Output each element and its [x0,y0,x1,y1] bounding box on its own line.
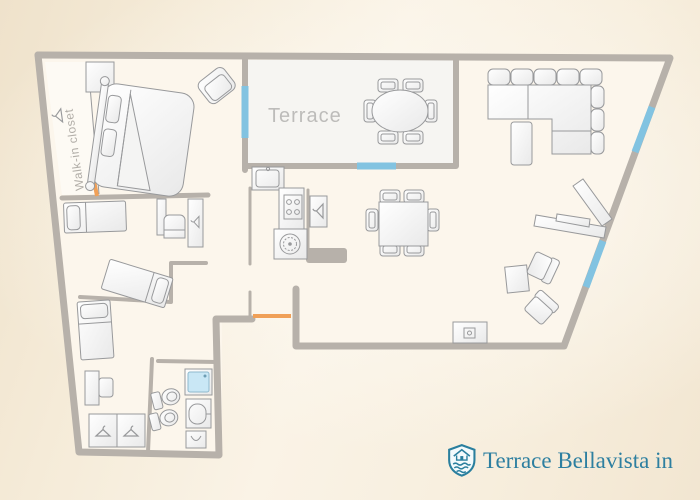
brand-name: Terrace Bellavista in [483,448,673,473]
pillow [67,206,81,230]
brand-shield-icon [449,445,474,475]
bedroom1-wall [62,195,208,198]
hall-wall-block [306,248,347,263]
washing-machine [274,229,307,259]
dining-chair [427,209,439,231]
brand-logo: Terrace Bellavista in [449,445,673,475]
hall-wardrobe [310,196,327,227]
oval-table [372,90,428,132]
terrace-label: Terrace [268,105,342,127]
desk-chair [99,378,113,397]
floor-plan: Walk-in closet Terrace [0,0,700,500]
floor-plan-canvas: Walk-in closet Terrace [0,0,700,500]
tv-unit [453,322,487,343]
stove [284,195,302,219]
dining-chair [404,190,424,203]
desk [164,230,185,238]
ottoman [511,122,532,165]
side-table [505,265,530,293]
cabinet [188,199,203,247]
single-bed-3 [77,300,114,360]
single-bed-1 [63,201,126,233]
shower [185,369,212,395]
pillow [80,303,108,319]
dining-chair [380,190,400,203]
dining-table [379,202,428,246]
terrace-chair [403,131,423,144]
double-wardrobe [89,414,145,447]
double-bed [85,76,197,203]
desk [85,371,99,405]
bathroom-sink [186,399,211,428]
terrace-chair [378,131,398,144]
dining-chair [366,209,378,231]
small-fixture [186,431,206,448]
